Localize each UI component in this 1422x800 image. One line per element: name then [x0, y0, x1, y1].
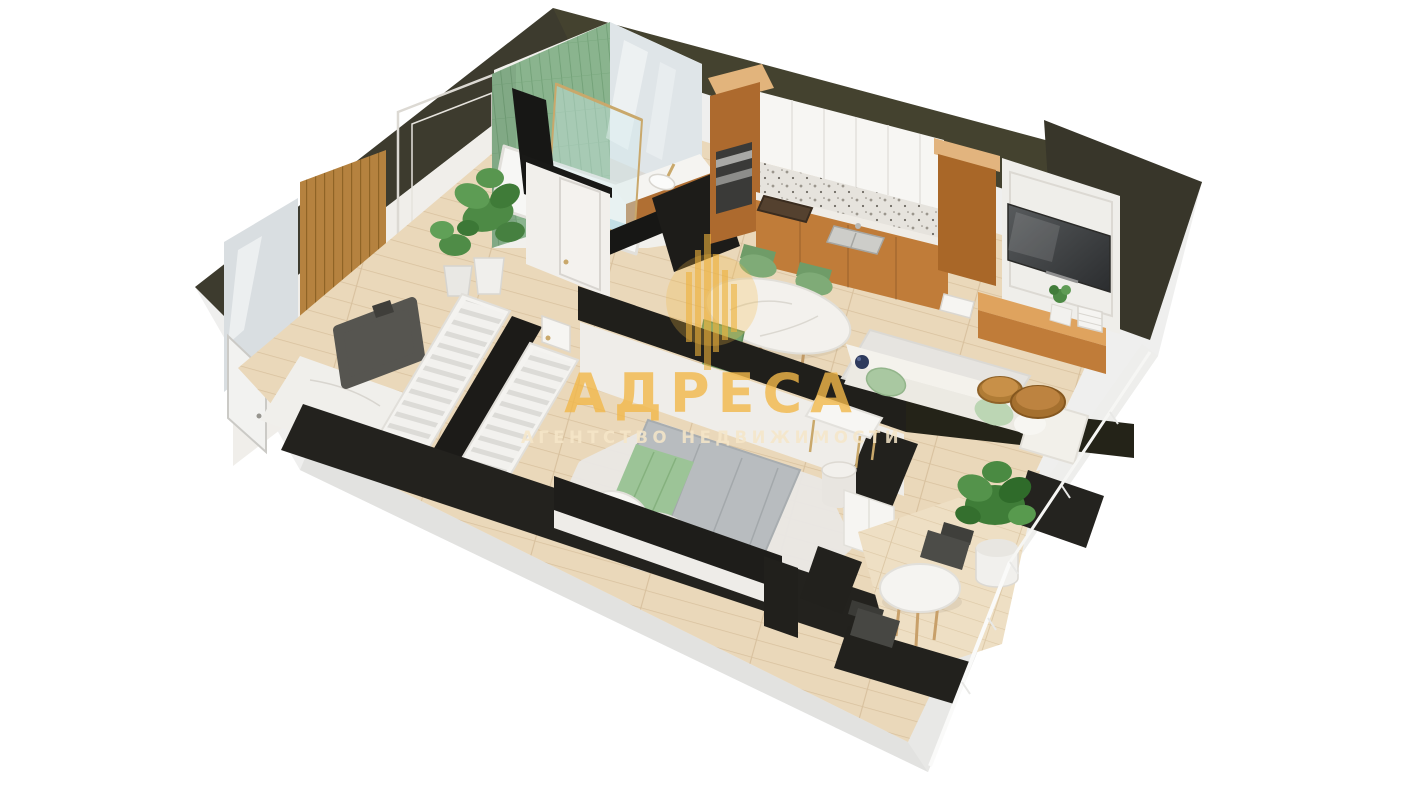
plant-pot: [474, 258, 504, 294]
bathroom-door: [560, 178, 600, 290]
drum-stool-top: [822, 462, 856, 478]
balustrade-post: [962, 682, 970, 694]
coffee-table-small-top: [982, 377, 1018, 397]
sink-faucet: [855, 223, 861, 229]
apartment-3d-svg: АДРЕСА АГЕНТСТВО НЕДВИЖИМОСТИ: [0, 0, 1422, 800]
table-leg: [916, 610, 918, 646]
bench-plant-leaves: [1049, 285, 1059, 295]
plant-pot: [444, 266, 472, 296]
wall-jog: [764, 556, 798, 638]
logo-bar: [686, 272, 692, 342]
entrance-door-handle: [257, 414, 262, 419]
bathroom-door-handle: [564, 260, 569, 265]
plant-leaves: [982, 461, 1012, 483]
watermark-logo-circle: [666, 254, 758, 346]
plant-leaves: [430, 221, 454, 239]
corridor-door-handle: [546, 336, 551, 341]
bench-plant-leaves: [1061, 285, 1071, 295]
plant-leaves: [476, 168, 504, 188]
logo-bar: [713, 254, 719, 352]
plant-leaves: [457, 220, 479, 236]
floor-plan-render: АДРЕСА АГЕНТСТВО НЕДВИЖИМОСТИ: [0, 0, 1422, 800]
plant-pot-top: [976, 539, 1018, 557]
watermark-title: АДРЕСА: [564, 362, 860, 425]
watermark-subtitle: АГЕНТСТВО НЕДВИЖИМОСТИ: [521, 428, 903, 447]
logo-bar: [695, 250, 701, 356]
logo-bar: [704, 234, 711, 370]
balcony-table-top: [880, 564, 960, 612]
blue-vase-highlight: [857, 357, 861, 361]
logo-bar: [731, 284, 737, 332]
kitchen-right-column: [938, 154, 996, 286]
logo-bar: [722, 270, 728, 340]
coffee-table-large-top: [1016, 386, 1060, 410]
